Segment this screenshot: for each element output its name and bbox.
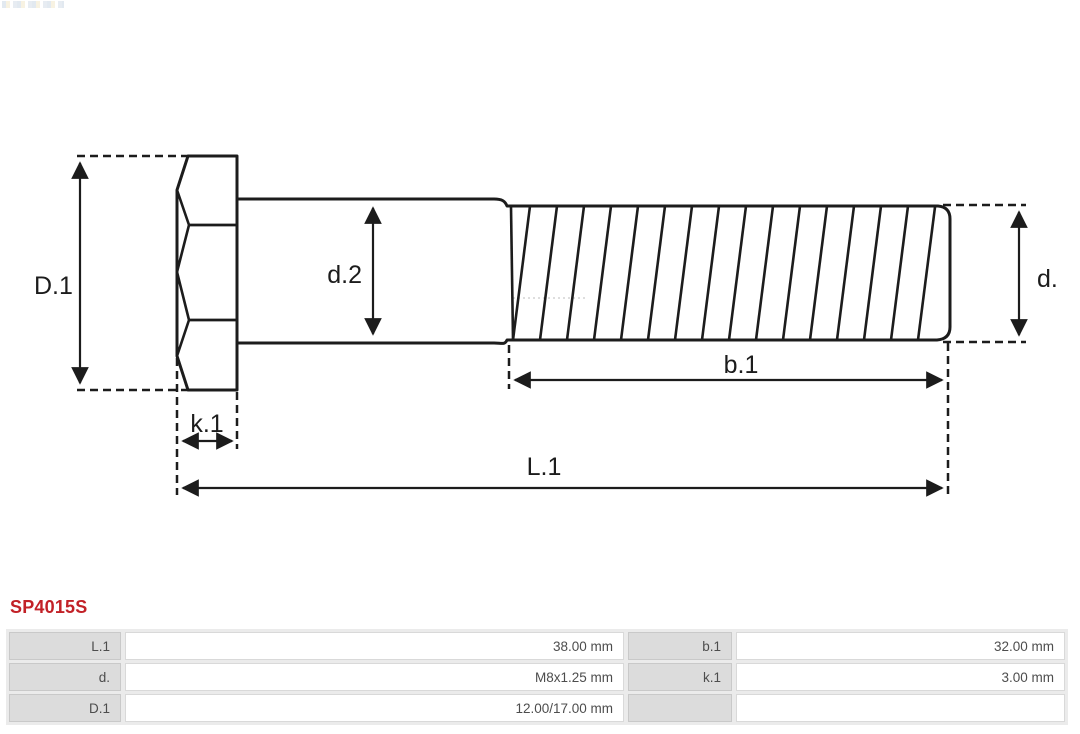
spec-row-1: L.1 38.00 mm b.1 32.00 mm bbox=[9, 632, 1065, 660]
spec-row-3: D.1 12.00/17.00 mm bbox=[9, 694, 1065, 722]
label-d2: d.2 bbox=[327, 261, 362, 289]
spec-label-b1: b.1 bbox=[628, 632, 732, 660]
spec-value-b1: 32.00 mm bbox=[736, 632, 1065, 660]
label-b1: b.1 bbox=[724, 351, 759, 379]
spec-value-D1: 12.00/17.00 mm bbox=[125, 694, 624, 722]
spec-label-L1: L.1 bbox=[9, 632, 121, 660]
spec-value-k1: 3.00 mm bbox=[736, 663, 1065, 691]
thread-hatching bbox=[513, 206, 935, 340]
spec-value-d: M8x1.25 mm bbox=[125, 663, 624, 691]
spec-label-k1: k.1 bbox=[628, 663, 732, 691]
product-spec-page: D.1 d.2 d. k.1 b.1 L.1 SP4015S L.1 38.00… bbox=[0, 0, 1080, 734]
spec-table: L.1 38.00 mm b.1 32.00 mm d. M8x1.25 mm … bbox=[6, 629, 1068, 725]
spec-label-D1: D.1 bbox=[9, 694, 121, 722]
spec-row-2: d. M8x1.25 mm k.1 3.00 mm bbox=[9, 663, 1065, 691]
product-code: SP4015S bbox=[10, 597, 87, 618]
bolt-technical-drawing: D.1 d.2 d. k.1 b.1 L.1 bbox=[0, 0, 1080, 560]
spec-label-d: d. bbox=[9, 663, 121, 691]
spec-value-empty bbox=[736, 694, 1065, 722]
spec-value-L1: 38.00 mm bbox=[125, 632, 624, 660]
label-D1: D.1 bbox=[34, 272, 73, 300]
spec-label-empty bbox=[628, 694, 732, 722]
thread-start-edge bbox=[511, 207, 513, 339]
label-L1: L.1 bbox=[527, 453, 562, 481]
label-d: d. bbox=[1037, 265, 1058, 293]
bolt-head-outline bbox=[177, 156, 237, 390]
label-k1: k.1 bbox=[190, 410, 223, 438]
